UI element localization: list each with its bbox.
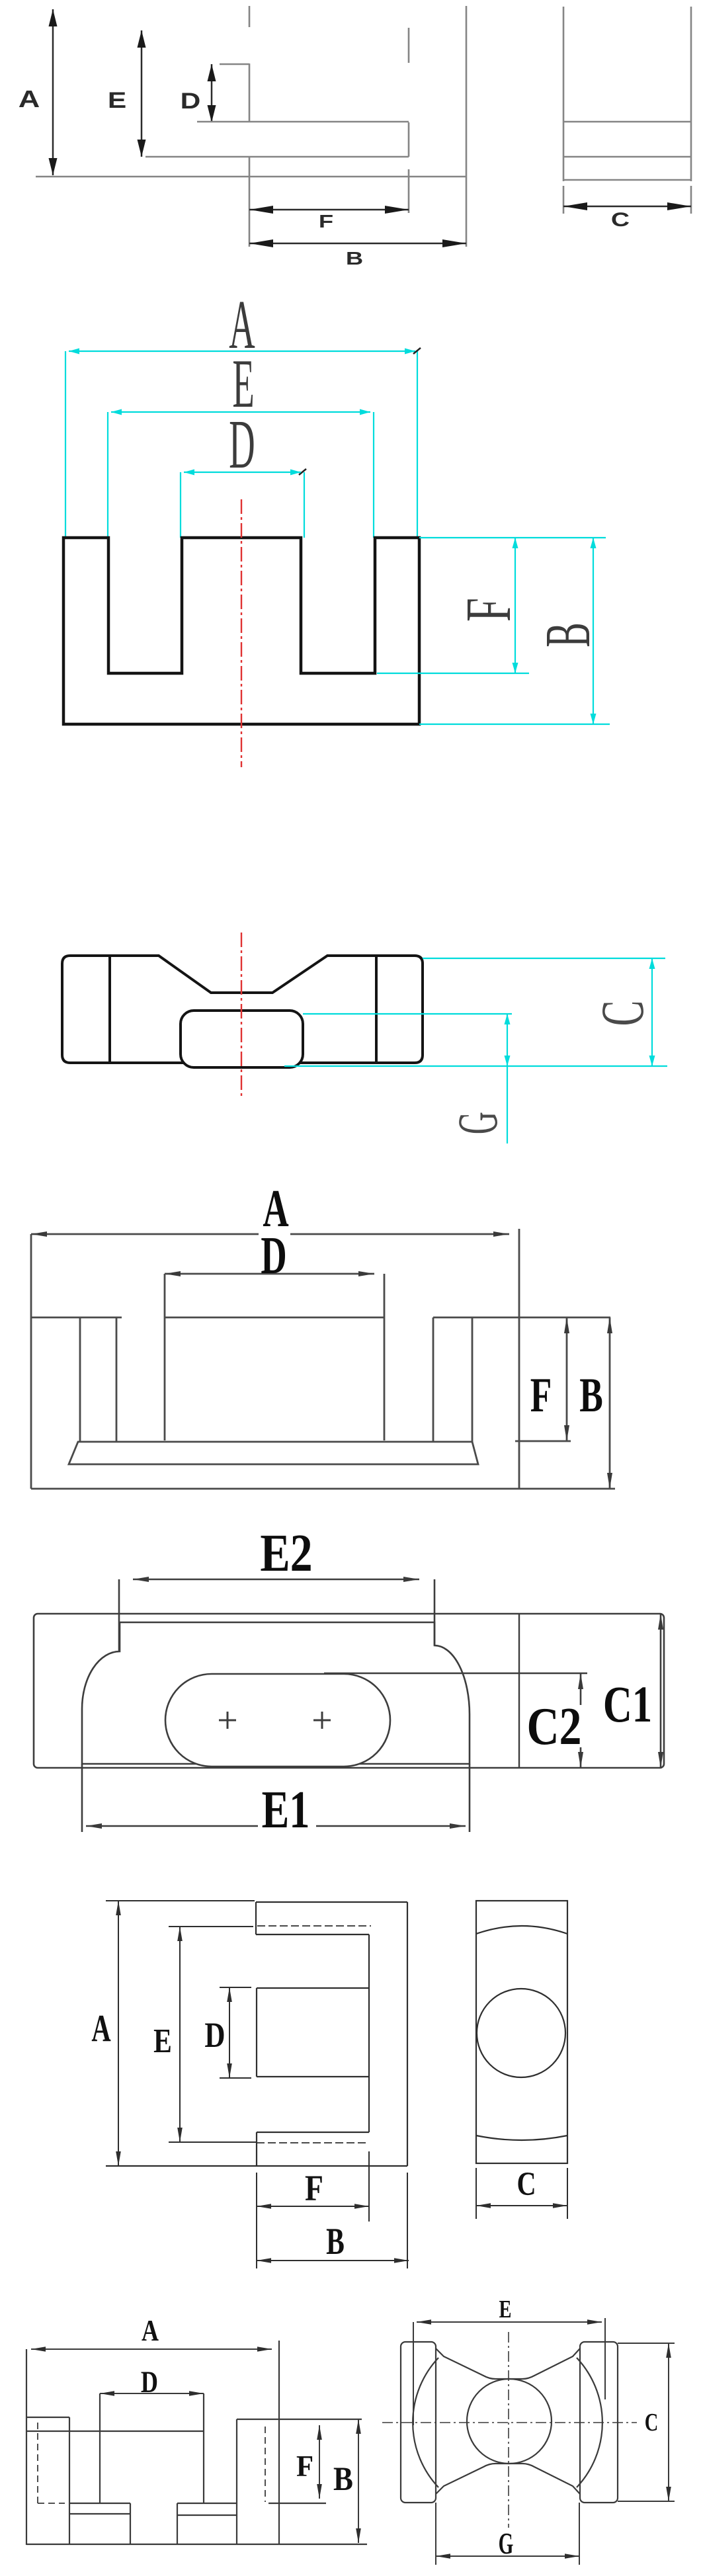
svg-text:E2: E2: [260, 1524, 312, 1583]
svg-text:C: C: [588, 1001, 656, 1026]
svg-text:F: F: [452, 598, 524, 622]
svg-text:A: A: [91, 2007, 110, 2050]
svg-text:C: C: [611, 209, 630, 231]
svg-text:D: D: [204, 2015, 225, 2055]
svg-text:G: G: [499, 2528, 514, 2561]
svg-text:F: F: [296, 2450, 313, 2483]
svg-text:C1: C1: [603, 1677, 652, 1733]
svg-text:E: E: [108, 88, 126, 113]
svg-text:E1: E1: [262, 1780, 310, 1839]
svg-text:C: C: [645, 2409, 659, 2436]
svg-text:D: D: [181, 89, 201, 114]
svg-text:B: B: [346, 248, 363, 269]
svg-text:C2: C2: [526, 1698, 581, 1756]
svg-text:F: F: [319, 211, 333, 231]
svg-text:F: F: [530, 1368, 552, 1422]
svg-text:C: C: [516, 2165, 536, 2203]
svg-text:B: B: [532, 622, 604, 647]
svg-text:G: G: [446, 1112, 509, 1134]
svg-text:D: D: [229, 406, 255, 483]
svg-text:E: E: [153, 2022, 172, 2060]
svg-text:B: B: [579, 1368, 603, 1422]
svg-text:B: B: [326, 2221, 345, 2263]
svg-text:A: A: [19, 85, 40, 112]
svg-text:F: F: [305, 2168, 323, 2208]
svg-text:D: D: [141, 2366, 158, 2400]
svg-text:E: E: [499, 2296, 511, 2323]
svg-text:B: B: [333, 2460, 353, 2497]
svg-text:A: A: [142, 2314, 159, 2347]
svg-text:D: D: [261, 1226, 286, 1285]
